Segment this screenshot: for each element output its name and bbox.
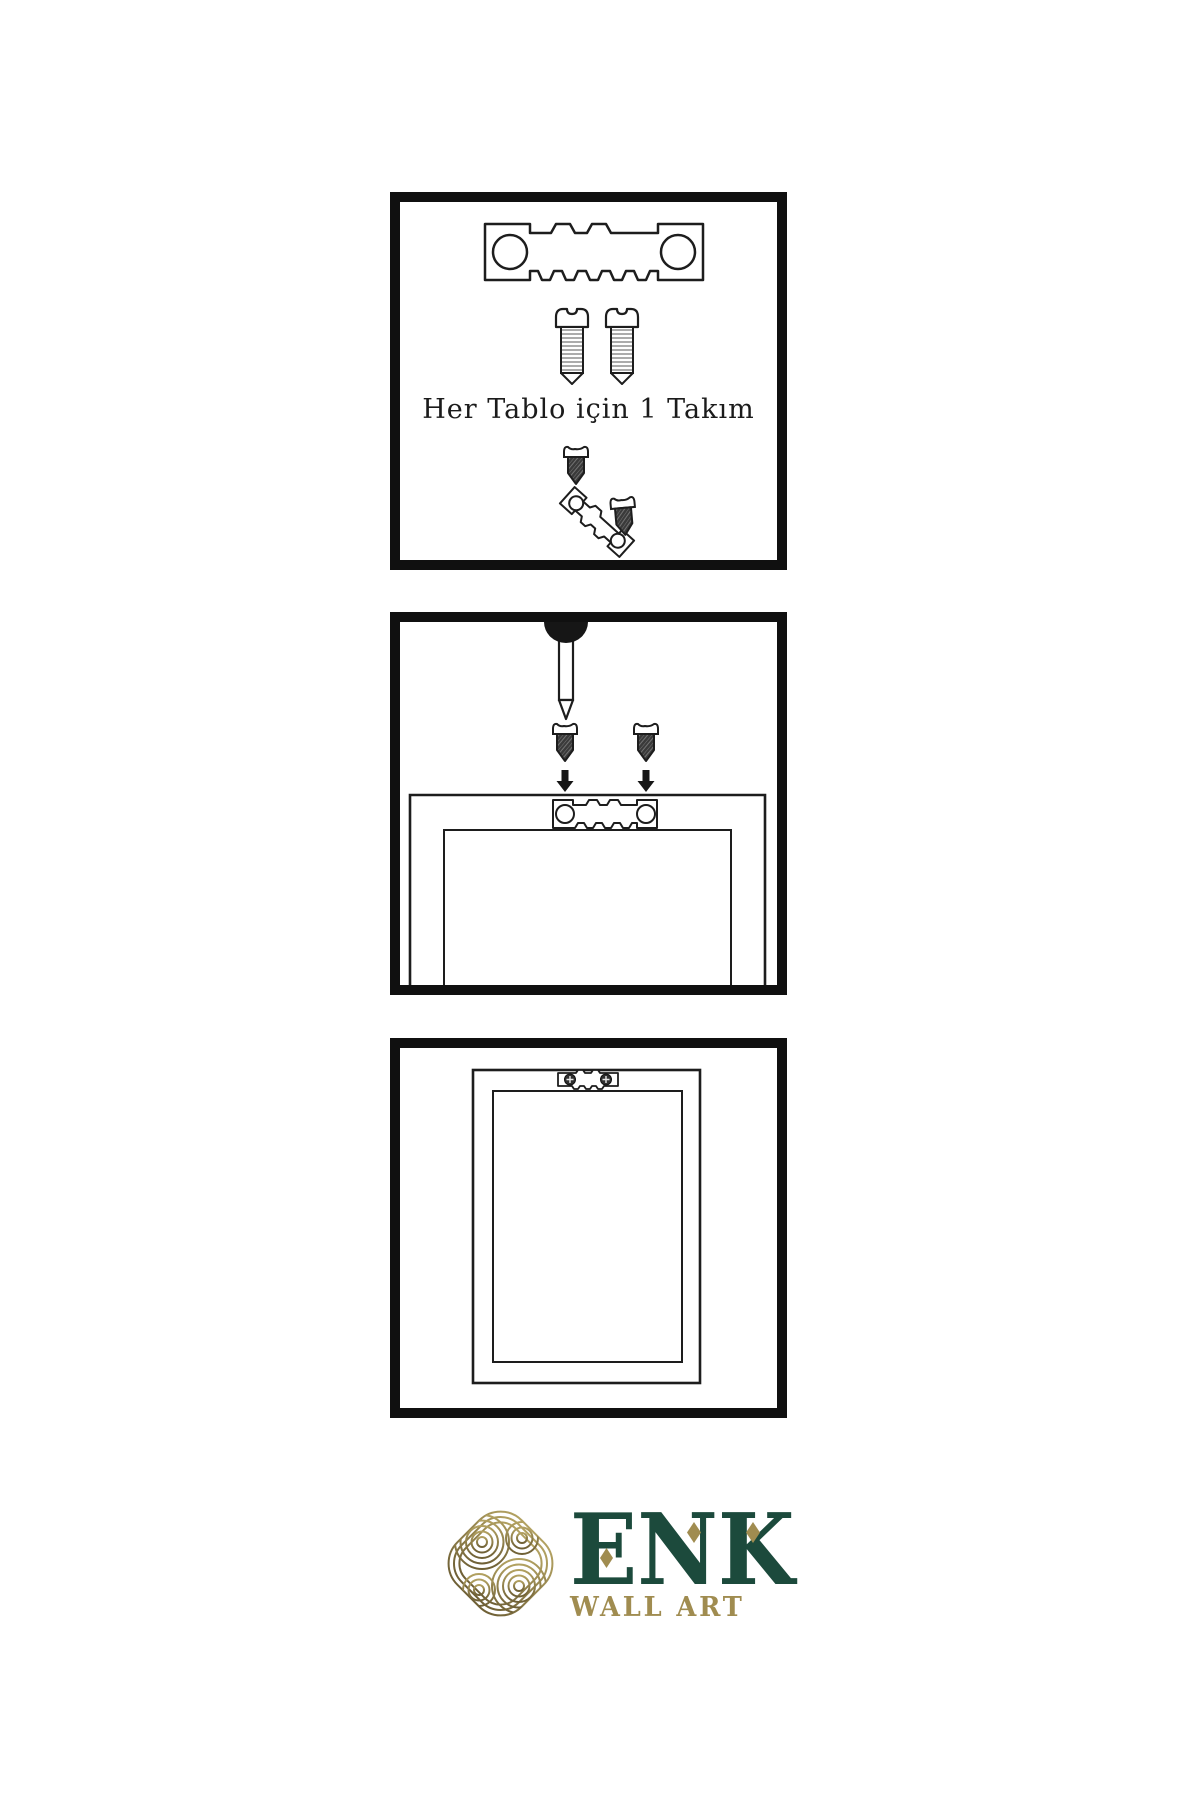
arrow-down-icon — [557, 770, 574, 792]
panel2-illustration — [400, 622, 777, 985]
screw-outline-icon — [556, 309, 588, 384]
brand-name: ENK — [570, 1502, 795, 1600]
panel1-illustration — [400, 202, 777, 560]
page: Her Tablo için 1 Takım — [0, 0, 1200, 1800]
arrow-down-icon — [638, 770, 655, 792]
brand-tagline: WALL ART — [570, 1594, 745, 1621]
sawtooth-hanger-icon — [558, 1070, 618, 1089]
panel1-caption: Her Tablo için 1 Takım — [400, 396, 777, 423]
screw-outline-icon — [606, 309, 638, 384]
knot-logo-icon — [438, 1500, 563, 1628]
panel-mounting-steps — [390, 612, 787, 995]
hanger-assembly-tilted — [560, 447, 637, 557]
panel-hardware-kit: Her Tablo için 1 Takım — [390, 192, 787, 570]
panel-hung-frame — [390, 1038, 787, 1418]
screw-dark-icon — [564, 447, 588, 484]
sawtooth-hanger-icon — [553, 800, 657, 828]
panel3-illustration — [400, 1048, 777, 1408]
picture-frame-front-icon — [473, 1070, 700, 1383]
screw-dark-icon — [634, 724, 658, 761]
nail-icon — [544, 622, 588, 719]
screw-dark-icon — [553, 724, 577, 761]
sawtooth-hanger-icon — [485, 224, 703, 280]
